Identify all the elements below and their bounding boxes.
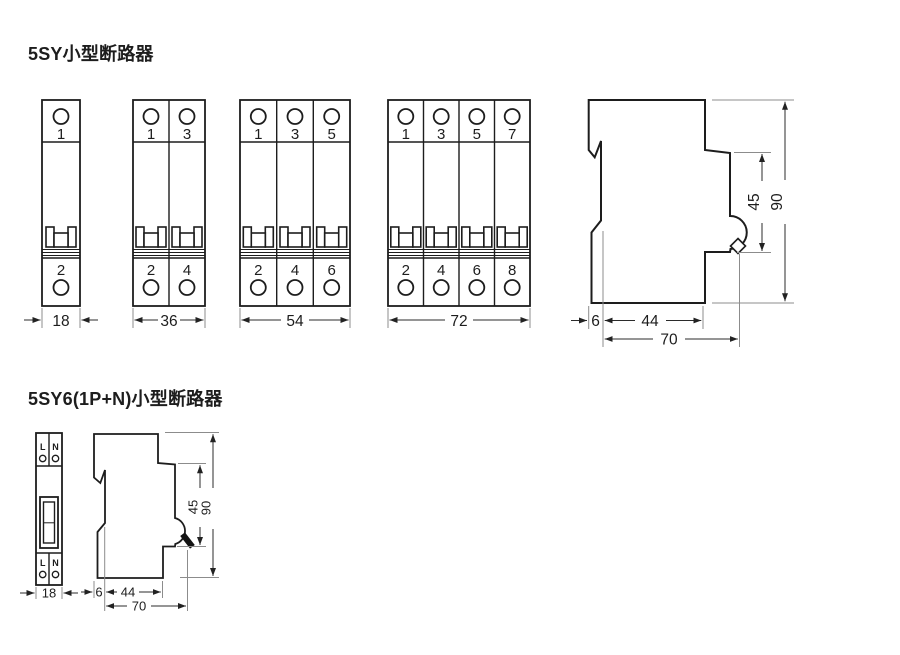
dimension-label: 18 (52, 313, 69, 330)
drawing-page: 5SY小型断路器 5SY6(1P+N)小型断路器 1 2 (0, 0, 900, 655)
front-view-4pole: 1 3 5 7 2 4 6 8 72 (388, 100, 530, 330)
terminal-number: 8 (508, 262, 516, 279)
terminal-number: 3 (183, 126, 191, 143)
terminal-number: 2 (254, 262, 262, 279)
front-view-3pole: 1 3 5 2 4 6 54 (240, 100, 350, 330)
dimension-label: 70 (132, 599, 146, 614)
terminal-circle (52, 455, 58, 461)
terminal-letter: N (52, 442, 59, 452)
terminal-number: 3 (437, 126, 445, 143)
front-view-1pn: L N L N 18 (20, 433, 78, 601)
terminal-number: 1 (57, 126, 65, 143)
terminal-number: 6 (473, 262, 481, 279)
terminal-circle (52, 571, 58, 577)
dimension-label: 70 (660, 332, 678, 349)
terminal-number: 5 (473, 126, 481, 143)
front-view-1pole: 1 2 18 (24, 100, 98, 330)
side-view-1pn: 45 90 6 44 70 (81, 433, 219, 614)
front-view-2pole: 1 3 2 4 36 (133, 100, 205, 330)
terminal-number: 5 (328, 126, 336, 143)
dimension-label: 44 (641, 313, 659, 330)
dimension-label: 72 (450, 313, 467, 330)
width-dimension: 54 (240, 308, 350, 330)
dimension-label: 90 (199, 501, 214, 515)
terminal-number: 2 (402, 262, 410, 279)
dimension-label: 18 (42, 586, 56, 601)
terminal-circle (54, 280, 69, 295)
terminal-letter: L (40, 442, 46, 452)
dimension-drawing: 1 2 18 1 3 (0, 0, 900, 655)
terminal-letter: L (40, 558, 46, 568)
terminal-number: 4 (183, 262, 191, 279)
dimension-label: 44 (121, 585, 135, 600)
terminal-circle (40, 455, 46, 461)
rocker-switch (40, 497, 58, 548)
terminal-number: 1 (147, 126, 155, 143)
terminal-number: 1 (254, 126, 262, 143)
width-dimension: 72 (388, 308, 530, 330)
terminal-number: 7 (508, 126, 516, 143)
terminal-circle (54, 109, 69, 124)
terminal-number: 4 (437, 262, 445, 279)
terminal-number: 1 (402, 126, 410, 143)
dimension-label: 45 (746, 193, 763, 210)
width-dimension: 18 (20, 586, 78, 601)
side-view-main: 45 90 6 44 (571, 100, 794, 349)
terminal-number: 3 (291, 126, 299, 143)
dimension-label: 6 (591, 313, 600, 330)
dimension-label: 54 (286, 313, 304, 330)
terminal-number: 4 (291, 262, 299, 279)
width-dimension: 36 (133, 308, 205, 330)
dimension-label: 90 (769, 193, 786, 211)
width-dimension: 18 (24, 308, 98, 330)
terminal-number: 2 (57, 262, 65, 279)
side-profile-outline (94, 434, 185, 578)
dimension-label: 6 (95, 585, 102, 600)
terminal-number: 6 (328, 262, 336, 279)
terminal-letter: N (52, 558, 59, 568)
dimension-label: 36 (160, 313, 177, 330)
side-profile-outline (589, 100, 747, 303)
terminal-number: 2 (147, 262, 155, 279)
terminal-circle (40, 571, 46, 577)
